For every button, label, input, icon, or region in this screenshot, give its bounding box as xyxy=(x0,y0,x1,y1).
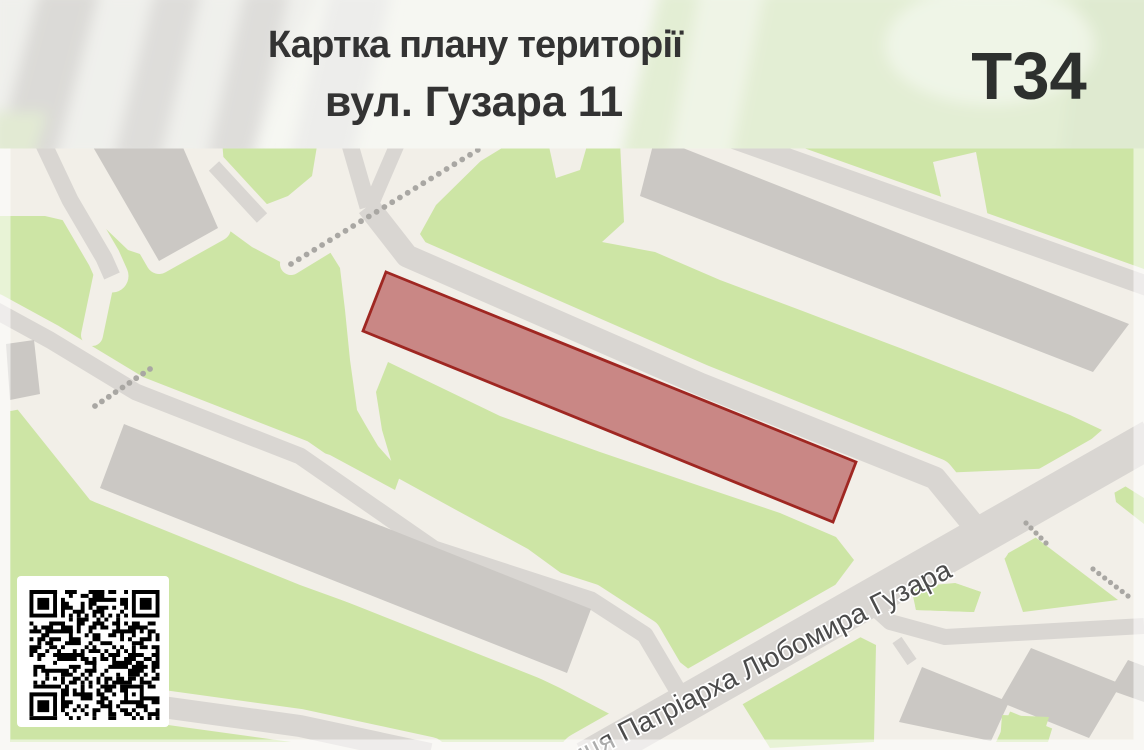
svg-text:Т34: Т34 xyxy=(971,39,1086,114)
svg-text:вул. Гузара 11: вул. Гузара 11 xyxy=(325,78,623,126)
svg-text:Картка плану території: Картка плану території xyxy=(268,24,684,66)
